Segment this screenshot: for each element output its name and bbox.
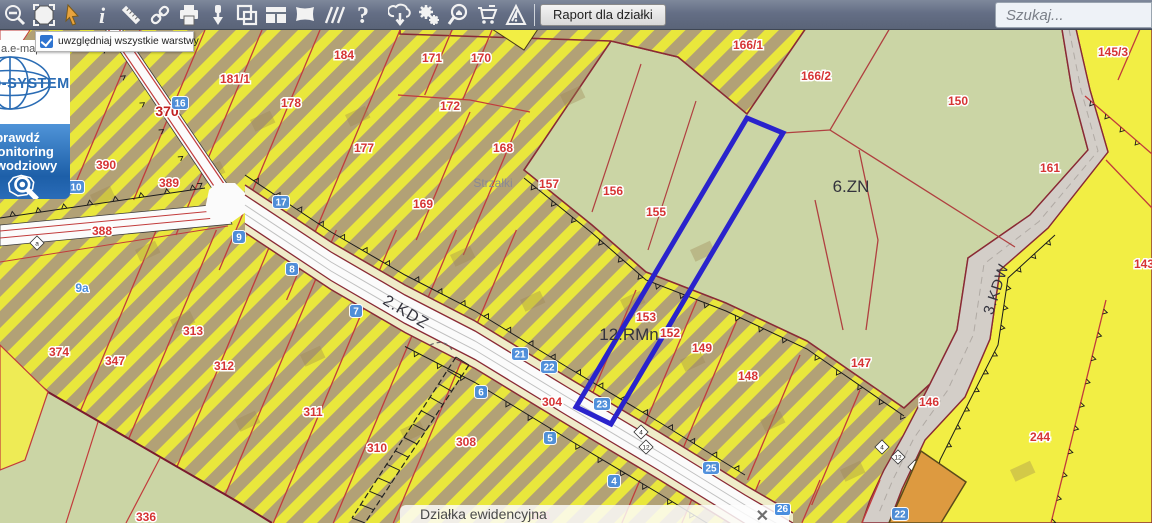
svg-text:143: 143	[1134, 257, 1152, 271]
svg-text:161: 161	[1040, 161, 1060, 175]
svg-text:148: 148	[738, 369, 758, 383]
svg-text:388: 388	[92, 224, 112, 238]
svg-text:155: 155	[646, 205, 666, 219]
svg-text:312: 312	[214, 359, 234, 373]
svg-text:166/1: 166/1	[733, 38, 763, 52]
svg-text:313: 313	[183, 324, 203, 338]
svg-text:25: 25	[705, 464, 717, 475]
svg-text:4: 4	[880, 445, 884, 452]
svg-text:147: 147	[851, 356, 871, 370]
svg-text:168: 168	[493, 141, 513, 155]
svg-text:149: 149	[692, 341, 712, 355]
svg-text:Strzałki: Strzałki	[473, 176, 512, 190]
svg-text:9a: 9a	[75, 281, 89, 295]
svg-text:244: 244	[1030, 430, 1050, 444]
svg-text:177: 177	[354, 141, 374, 155]
svg-text:170: 170	[471, 51, 491, 65]
svg-text:336: 336	[136, 510, 156, 523]
svg-text:a: a	[35, 241, 39, 248]
svg-text:153: 153	[636, 310, 656, 324]
svg-text:O-SYSTEM: O-SYSTEM	[0, 76, 70, 92]
svg-text:390: 390	[96, 158, 116, 172]
svg-text:5: 5	[547, 434, 553, 445]
svg-text:7: 7	[353, 307, 359, 318]
svg-text:146: 146	[919, 395, 939, 409]
svg-text:157: 157	[539, 177, 559, 191]
svg-text:310: 310	[367, 441, 387, 455]
svg-text:374: 374	[49, 345, 69, 359]
svg-text:156: 156	[603, 184, 623, 198]
svg-text:9: 9	[236, 233, 242, 244]
svg-text:8: 8	[289, 265, 295, 276]
svg-text:6.ZN: 6.ZN	[833, 177, 870, 196]
svg-text:150: 150	[948, 94, 968, 108]
svg-text:145/3: 145/3	[1098, 45, 1128, 59]
svg-text:6: 6	[478, 388, 484, 399]
svg-text:184: 184	[334, 48, 354, 62]
svg-text:16: 16	[174, 99, 186, 110]
svg-text:i: i	[98, 3, 105, 27]
svg-text:22: 22	[894, 510, 906, 521]
svg-text:4: 4	[611, 477, 617, 488]
svg-text:152: 152	[660, 326, 680, 340]
svg-text:17: 17	[275, 198, 287, 209]
svg-text:178: 178	[281, 96, 301, 110]
svg-text:347: 347	[105, 354, 125, 368]
svg-text:12.RMn: 12.RMn	[599, 325, 659, 344]
svg-text:171: 171	[422, 51, 442, 65]
svg-text:10: 10	[70, 183, 82, 194]
svg-text:181/1: 181/1	[220, 72, 250, 86]
svg-text:169: 169	[413, 197, 433, 211]
svg-text:23: 23	[596, 400, 608, 411]
svg-text:12: 12	[642, 445, 650, 452]
svg-text:?: ?	[357, 3, 369, 27]
svg-text:308: 308	[456, 435, 476, 449]
svg-text:21: 21	[514, 350, 526, 361]
svg-text:172: 172	[440, 99, 460, 113]
svg-text:389: 389	[159, 176, 179, 190]
svg-text:12: 12	[894, 455, 902, 462]
svg-text:4: 4	[639, 430, 643, 437]
svg-text:22: 22	[543, 363, 555, 374]
svg-text:166/2: 166/2	[801, 69, 831, 83]
svg-text:304: 304	[542, 395, 562, 409]
svg-text:311: 311	[303, 405, 323, 419]
